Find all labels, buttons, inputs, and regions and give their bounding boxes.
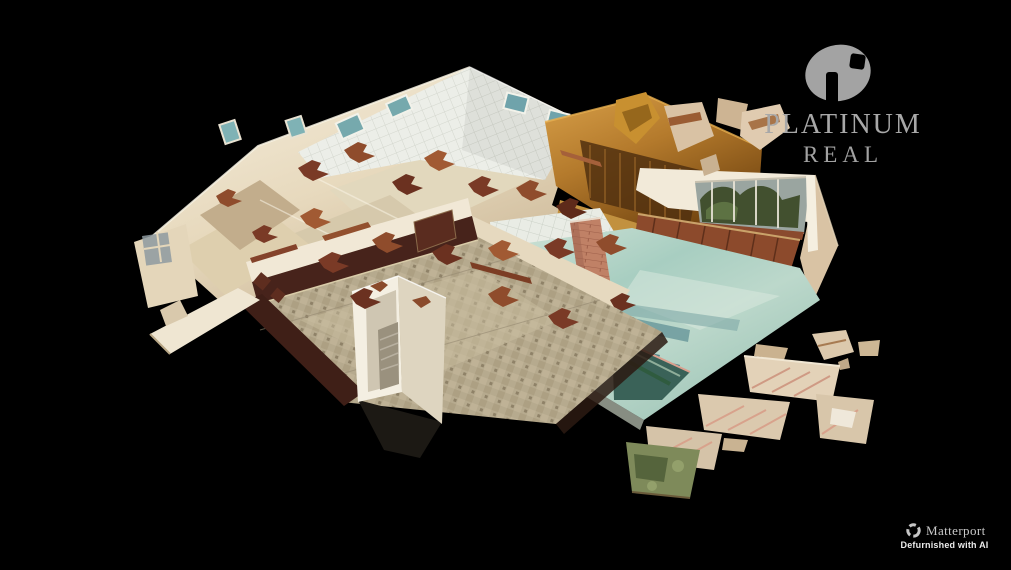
- matterport-wordmark: Matterport: [926, 523, 986, 539]
- defurnished-tagline: Defurnished with AI: [897, 540, 992, 550]
- matterport-viewer: PLATINUM REAL Matterport Defurnished wit…: [0, 0, 1011, 570]
- platinum-real-logo-icon: [802, 42, 874, 108]
- foliage-fragment: [626, 442, 700, 498]
- brand-name: PLATINUM: [753, 109, 933, 141]
- brand-subname: REAL: [753, 142, 933, 168]
- matterport-ring-icon: [905, 522, 922, 539]
